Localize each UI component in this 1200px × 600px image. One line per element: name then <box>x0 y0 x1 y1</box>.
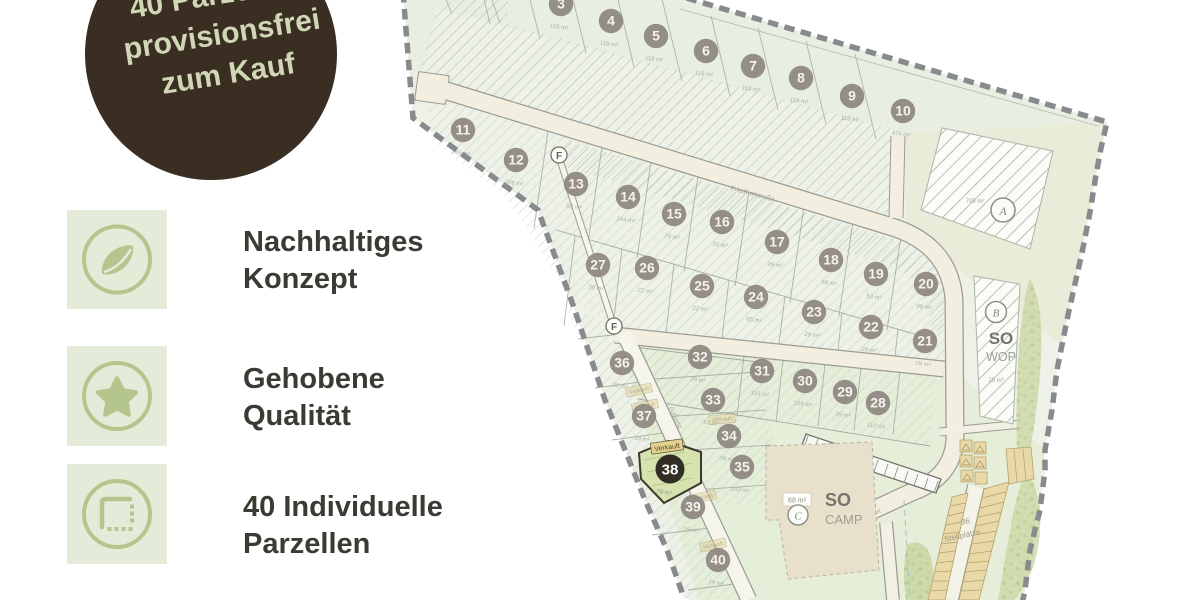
svg-text:35: 35 <box>734 459 750 475</box>
svg-text:30: 30 <box>797 373 813 389</box>
svg-text:20: 20 <box>918 276 934 292</box>
svg-text:F: F <box>611 322 617 333</box>
svg-text:23: 23 <box>806 304 822 320</box>
svg-text:A: A <box>998 204 1007 218</box>
svg-text:12: 12 <box>508 152 524 168</box>
svg-text:7: 7 <box>749 58 757 74</box>
svg-text:3: 3 <box>557 0 565 12</box>
svg-text:34: 34 <box>721 428 737 444</box>
svg-text:21: 21 <box>917 333 933 349</box>
svg-text:40: 40 <box>710 552 726 568</box>
svg-text:705 m²: 705 m² <box>966 199 985 205</box>
svg-text:24: 24 <box>748 289 764 305</box>
svg-text:14: 14 <box>620 189 636 205</box>
svg-text:F: F <box>556 151 562 162</box>
svg-text:16: 16 <box>714 214 730 230</box>
svg-text:11: 11 <box>456 122 471 138</box>
svg-text:4: 4 <box>607 13 615 29</box>
svg-text:SO: SO <box>825 490 851 510</box>
svg-text:18: 18 <box>823 252 839 268</box>
svg-text:6: 6 <box>702 43 710 59</box>
svg-text:28: 28 <box>870 395 886 411</box>
svg-text:5: 5 <box>652 28 660 44</box>
svg-text:WOP: WOP <box>986 350 1016 364</box>
svg-text:13: 13 <box>568 176 584 192</box>
svg-text:68 m²: 68 m² <box>788 498 807 505</box>
svg-text:CAMP: CAMP <box>825 512 863 527</box>
svg-text:22: 22 <box>863 319 879 335</box>
svg-text:19: 19 <box>868 266 884 282</box>
svg-text:8: 8 <box>797 70 805 86</box>
svg-text:33: 33 <box>705 392 721 408</box>
svg-text:26: 26 <box>639 260 655 276</box>
svg-text:31: 31 <box>754 363 770 379</box>
svg-text:36: 36 <box>614 355 630 371</box>
svg-text:25: 25 <box>694 278 710 294</box>
svg-text:29: 29 <box>837 384 853 400</box>
svg-text:25 m²: 25 m² <box>988 378 1003 384</box>
svg-text:15: 15 <box>666 206 682 222</box>
svg-text:27: 27 <box>590 257 606 273</box>
svg-text:37: 37 <box>636 408 652 424</box>
svg-text:C: C <box>794 511 802 523</box>
svg-text:10: 10 <box>895 103 911 119</box>
svg-text:39: 39 <box>685 499 701 515</box>
svg-text:17: 17 <box>769 234 785 250</box>
svg-text:9: 9 <box>848 88 856 104</box>
svg-text:SO: SO <box>989 329 1014 348</box>
svg-text:B: B <box>993 308 1000 320</box>
svg-text:32: 32 <box>692 349 708 365</box>
svg-text:38: 38 <box>662 462 679 479</box>
